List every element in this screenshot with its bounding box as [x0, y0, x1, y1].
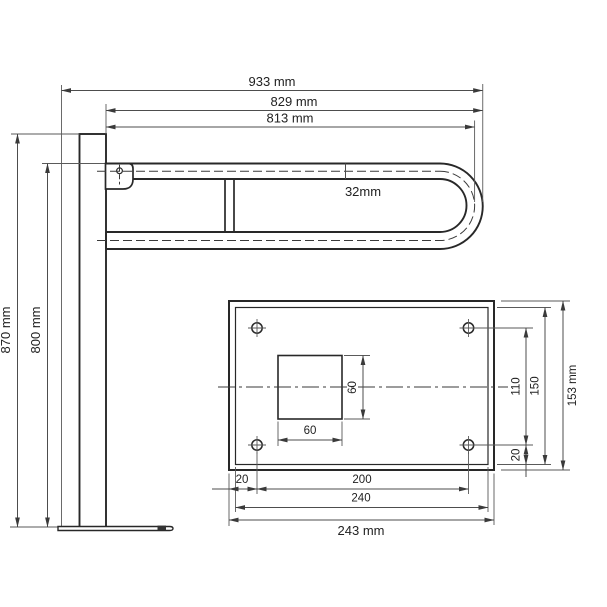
dim-label-20-left: 20: [236, 474, 249, 486]
dim-label-240: 240: [351, 493, 370, 505]
dim-label-200: 200: [352, 474, 371, 486]
dim-label-933: 933 mm: [249, 74, 296, 89]
dim-label-square-height: 60: [347, 381, 359, 394]
u-bend-centerline-arc: [440, 171, 475, 240]
base-plate: [58, 527, 173, 531]
technical-drawing-canvas: 32mm 933 mm 829 mm 813 mm 870 mm 800 mm: [0, 0, 607, 607]
plate-outer-outline: [229, 301, 494, 470]
base-plate-bolt: [158, 526, 167, 531]
u-bend-outer-arc: [440, 164, 483, 250]
dim-label-150: 150: [530, 376, 542, 395]
dim-label-829: 829 mm: [271, 94, 318, 109]
dim-label-870: 870 mm: [0, 307, 13, 354]
dim-label-800: 800 mm: [28, 307, 43, 354]
tube-diameter-label: 32mm: [345, 184, 381, 199]
dim-label-813: 813 mm: [267, 111, 314, 126]
u-bend-inner-arc: [440, 179, 467, 232]
post-outline: [80, 134, 107, 527]
dim-label-153: 153 mm: [567, 365, 579, 407]
drawing-svg: 32mm 933 mm 829 mm 813 mm 870 mm 800 mm: [0, 0, 607, 607]
dim-label-243: 243 mm: [338, 523, 385, 538]
mounting-plate-view: 60 60 20 200 240 243 mm 110: [212, 301, 579, 538]
dim-label-square-width: 60: [304, 425, 317, 437]
dim-label-110: 110: [511, 377, 523, 395]
dim-label-20-right: 20: [511, 449, 523, 462]
